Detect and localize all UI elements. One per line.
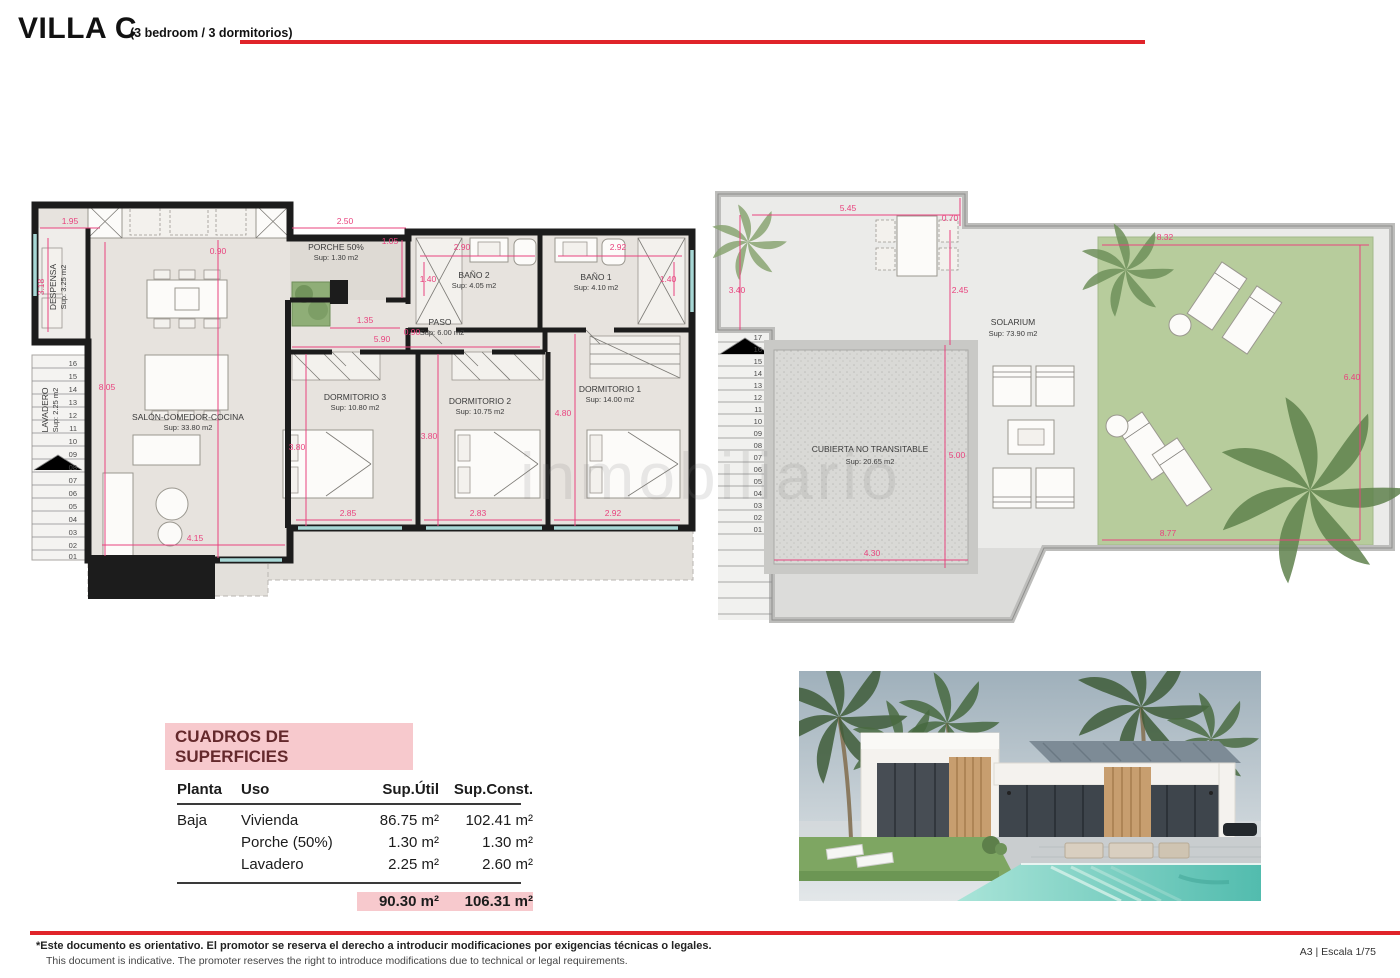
room-area: Sup: 6.00 m2 bbox=[420, 328, 465, 337]
table-cell: Porche (50%) bbox=[241, 833, 357, 852]
ground-floor-plan: 16 15 14 13 12 11 10 09 08 07 06 05 04 0… bbox=[30, 192, 702, 622]
dim-label: 2.50 bbox=[337, 216, 354, 226]
stair-num: 11 bbox=[754, 405, 762, 414]
stair-num: 01 bbox=[754, 525, 762, 534]
table-separator bbox=[177, 882, 521, 884]
stair-num: 16 bbox=[69, 359, 77, 368]
table-cell: Baja bbox=[177, 811, 241, 830]
dim-label: 6.40 bbox=[1344, 372, 1361, 382]
stair-num: 02 bbox=[69, 541, 77, 550]
surfaces-table-total: 90.30 m² 106.31 m² bbox=[177, 892, 521, 911]
dim-label: 3.40 bbox=[729, 285, 746, 295]
col-planta: Planta bbox=[177, 780, 241, 799]
footer-scale: A3 | Escala 1/75 bbox=[1300, 946, 1376, 958]
stair-num: 01 bbox=[69, 552, 77, 561]
total-util: 90.30 m² bbox=[357, 892, 439, 911]
stair-num: 03 bbox=[69, 528, 77, 537]
stair-num: 14 bbox=[69, 385, 77, 394]
stair-num: 04 bbox=[754, 489, 762, 498]
table-cell bbox=[241, 892, 357, 911]
dim-label: 3.18 bbox=[36, 278, 46, 295]
dim-label: 2.92 bbox=[610, 242, 627, 252]
room-area: Sup: 10.75 m2 bbox=[456, 407, 505, 416]
surfaces-table: CUADROS DE SUPERFICIES Planta Uso Sup.Út… bbox=[165, 723, 521, 911]
roof-plan: 17 16 15 14 13 12 11 10 09 08 07 06 05 0… bbox=[712, 188, 1400, 630]
dim-label: 1.40 bbox=[660, 274, 677, 284]
dining-table bbox=[147, 270, 227, 328]
table-cell bbox=[177, 892, 241, 911]
stair-num: 11 bbox=[69, 424, 77, 433]
dim-label: 1.40 bbox=[420, 274, 437, 284]
stair-num: 03 bbox=[754, 501, 762, 510]
footer-disclaimer-es: *Este documento es orientativo. El promo… bbox=[36, 940, 712, 952]
dim-label: 5.90 bbox=[374, 334, 391, 344]
bed-dorm2 bbox=[455, 430, 540, 498]
room-area: Sup: 1.30 m2 bbox=[314, 253, 359, 262]
stair-num: 09 bbox=[754, 429, 762, 438]
dim-label: 0.70 bbox=[942, 213, 959, 223]
stair-num: 08 bbox=[754, 441, 762, 450]
room-area: Sup: 3.25 m2 bbox=[59, 265, 68, 310]
stairwell-floor bbox=[718, 330, 772, 620]
dim-label: 1.05 bbox=[382, 236, 399, 246]
room-area: Sup: 33.80 m2 bbox=[164, 423, 213, 432]
dim-label: 5.00 bbox=[949, 450, 966, 460]
dim-label: 8.32 bbox=[1157, 232, 1174, 242]
stair-num: 10 bbox=[69, 437, 77, 446]
dim-label: 1.35 bbox=[357, 315, 374, 325]
room-label: DESPENSA bbox=[48, 264, 58, 311]
table-cell: Vivienda bbox=[241, 811, 357, 830]
page-subtitle: (3 bedroom / 3 dormitorios) bbox=[130, 26, 293, 40]
bed-dorm3 bbox=[283, 430, 373, 498]
stair-num: 08 bbox=[69, 463, 77, 472]
stair-num: 12 bbox=[754, 393, 762, 402]
stair-num: 10 bbox=[754, 417, 762, 426]
room-label: PORCHE 50% bbox=[308, 242, 364, 252]
kitchen-island bbox=[145, 355, 228, 420]
surfaces-table-title: CUADROS DE SUPERFICIES bbox=[165, 723, 413, 770]
stair-num: 04 bbox=[69, 515, 77, 524]
dim-label: 3.80 bbox=[289, 442, 306, 452]
stair-num: 16 bbox=[754, 345, 762, 354]
stair-num: 06 bbox=[69, 489, 77, 498]
table-cell: 102.41 m² bbox=[439, 811, 533, 830]
dim-label: 2.85 bbox=[340, 508, 357, 518]
page-title: VILLA C bbox=[18, 12, 137, 46]
dim-label: 8.77 bbox=[1160, 528, 1177, 538]
surfaces-table-body: Baja Vivienda 86.75 m² 102.41 m² Porche … bbox=[177, 811, 521, 874]
dim-label: 0.90 bbox=[404, 327, 421, 337]
room-label: DORMITORIO 2 bbox=[449, 396, 511, 406]
room-label: DORMITORIO 1 bbox=[579, 384, 641, 394]
room-area: Sup: 2.25 m2 bbox=[51, 388, 60, 433]
room-area: Sup: 4.10 m2 bbox=[574, 283, 619, 292]
total-const: 106.31 m² bbox=[439, 892, 533, 911]
stair-num: 07 bbox=[754, 453, 762, 462]
room-area: Sup: 73.90 m2 bbox=[989, 329, 1038, 338]
col-sup-util: Sup.Útil bbox=[357, 780, 439, 799]
plan-sheet: VILLA C (3 bedroom / 3 dormitorios) 16 1… bbox=[0, 0, 1400, 978]
room-area: Sup: 14.00 m2 bbox=[586, 395, 635, 404]
footer-red-rule bbox=[30, 931, 1400, 935]
room-label: CUBIERTA NO TRANSITABLE bbox=[812, 444, 929, 454]
table-cell: 2.25 m² bbox=[357, 855, 439, 874]
stair-num: 09 bbox=[69, 450, 77, 459]
table-cell bbox=[177, 855, 241, 874]
table-cell bbox=[177, 833, 241, 852]
dim-label: 0.90 bbox=[210, 246, 227, 256]
stair-num: 13 bbox=[754, 381, 762, 390]
room-label: LAVADERO bbox=[40, 387, 50, 432]
dim-label: 2.45 bbox=[952, 285, 969, 295]
room-area: Sup: 20.65 m2 bbox=[846, 457, 895, 466]
stair-num: 13 bbox=[69, 398, 77, 407]
room-area: Sup: 10.80 m2 bbox=[331, 403, 380, 412]
surfaces-table-header: Planta Uso Sup.Útil Sup.Const. bbox=[177, 780, 521, 805]
stair-num: 12 bbox=[69, 411, 77, 420]
kitchen-counter bbox=[88, 205, 290, 238]
header-red-rule bbox=[240, 40, 1145, 44]
footer-disclaimer-en: This document is indicative. The promote… bbox=[46, 955, 628, 967]
villa-render-photo bbox=[799, 671, 1261, 901]
stair-num: 15 bbox=[69, 372, 77, 381]
col-uso: Uso bbox=[241, 780, 357, 799]
dim-label: 4.15 bbox=[187, 533, 204, 543]
stair-num: 02 bbox=[754, 513, 762, 522]
stair-num: 17 bbox=[754, 333, 762, 342]
dim-label: 5.45 bbox=[840, 203, 857, 213]
table-cell: 1.30 m² bbox=[439, 833, 533, 852]
stair-num: 15 bbox=[754, 357, 762, 366]
table-cell: Lavadero bbox=[241, 855, 357, 874]
room-label: DORMITORIO 3 bbox=[324, 392, 386, 402]
dim-label: 3.80 bbox=[421, 431, 438, 441]
room-label: SALÓN-COMEDOR-COCINA bbox=[132, 412, 244, 422]
dim-label: 4.30 bbox=[864, 548, 881, 558]
dim-label: 2.92 bbox=[605, 508, 622, 518]
room-label: BAÑO 1 bbox=[580, 272, 611, 282]
stair-num: 05 bbox=[754, 477, 762, 486]
stair-num: 06 bbox=[754, 465, 762, 474]
dim-label: 1.95 bbox=[62, 216, 79, 226]
bed-dorm1 bbox=[587, 430, 680, 498]
room-label: BAÑO 2 bbox=[458, 270, 489, 280]
dim-label: 2.90 bbox=[454, 242, 471, 252]
col-sup-const: Sup.Const. bbox=[439, 780, 533, 799]
room-area: Sup: 4.05 m2 bbox=[452, 281, 497, 290]
table-cell: 2.60 m² bbox=[439, 855, 533, 874]
table-cell: 1.30 m² bbox=[357, 833, 439, 852]
room-label: SOLARIUM bbox=[991, 317, 1035, 327]
table-cell: 86.75 m² bbox=[357, 811, 439, 830]
dim-label: 2.83 bbox=[470, 508, 487, 518]
dim-label: 8.05 bbox=[99, 382, 116, 392]
stair-num: 05 bbox=[69, 502, 77, 511]
dim-label: 4.80 bbox=[555, 408, 572, 418]
room-label: PASO bbox=[429, 317, 452, 327]
render-villa bbox=[861, 733, 1241, 841]
stair-num: 07 bbox=[69, 476, 77, 485]
stair-num: 14 bbox=[754, 369, 762, 378]
